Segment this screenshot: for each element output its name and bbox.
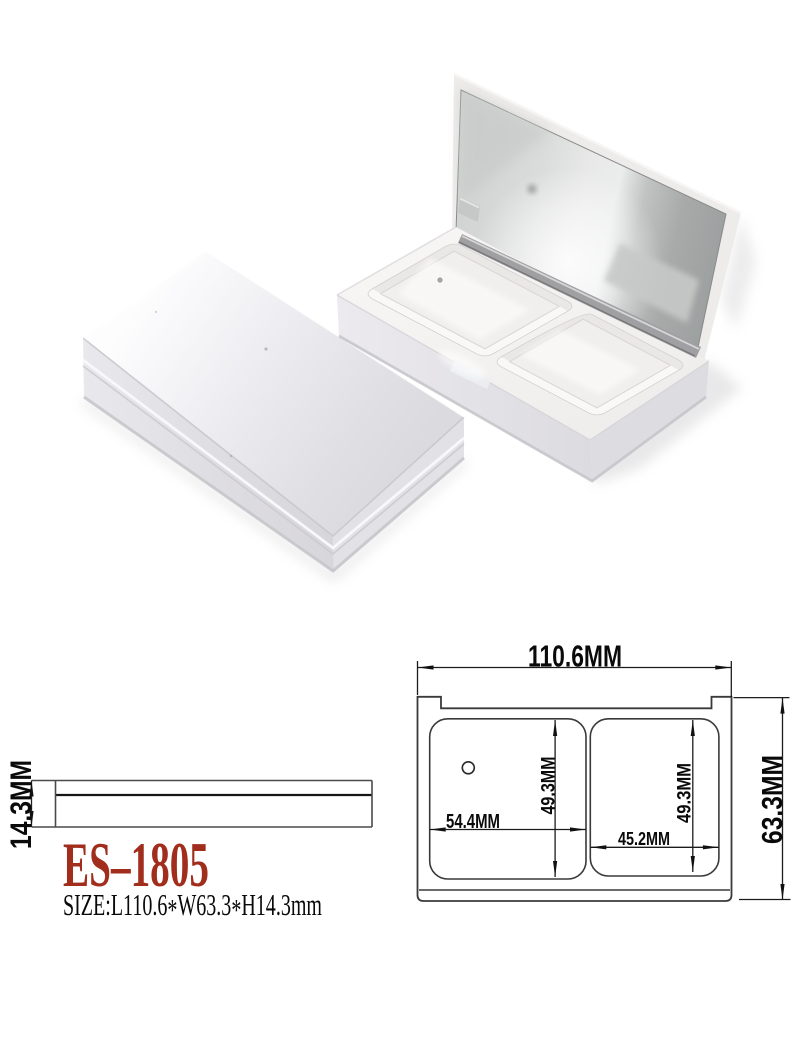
- svg-text:14.3MM: 14.3MM: [5, 760, 38, 849]
- svg-text:54.4MM: 54.4MM: [446, 811, 500, 833]
- svg-text:49.3MM: 49.3MM: [539, 757, 560, 815]
- svg-text:110.6MM: 110.6MM: [528, 639, 622, 674]
- svg-text:49.3MM: 49.3MM: [675, 763, 696, 823]
- svg-text:45.2MM: 45.2MM: [618, 829, 670, 849]
- svg-text:63.3MM: 63.3MM: [757, 755, 789, 844]
- svg-text:SIZE:L110.6*W63.3*H14.3mm: SIZE:L110.6*W63.3*H14.3mm: [63, 887, 322, 927]
